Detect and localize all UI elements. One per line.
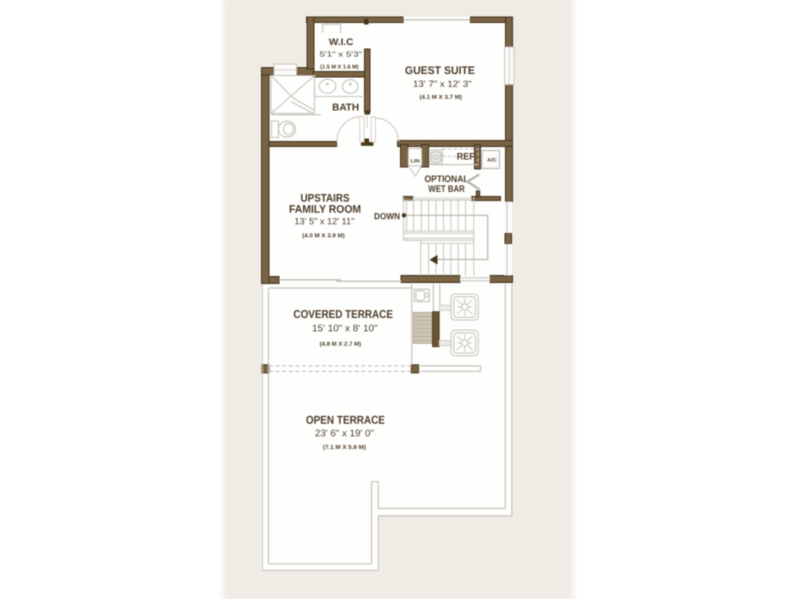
svg-text:A/C: A/C [487,158,497,164]
svg-text:WET BAR: WET BAR [428,184,465,195]
svg-text:BATH: BATH [332,102,359,113]
svg-text:(1.5 M X 1.6 M): (1.5 M X 1.6 M) [320,64,359,70]
svg-text:DOWN: DOWN [374,211,400,221]
svg-text:LIN: LIN [411,159,420,165]
svg-text:COVERED TERRACE: COVERED TERRACE [293,309,393,321]
svg-text:REF: REF [457,152,475,163]
svg-text:(4.1 M X 3.7 M): (4.1 M X 3.7 M) [419,95,462,101]
svg-text:(4.8 M X 2.7 M): (4.8 M X 2.7 M) [320,342,362,348]
svg-text:23' 6" x 19' 0": 23' 6" x 19' 0" [315,428,374,439]
svg-text:OPEN TERRACE: OPEN TERRACE [306,415,385,427]
svg-text:5'1" x 5'3": 5'1" x 5'3" [319,50,362,59]
svg-text:GUEST SUITE: GUEST SUITE [405,65,475,77]
svg-text:FAMILY ROOM: FAMILY ROOM [289,204,361,216]
svg-text:13' 5" x 12' 11": 13' 5" x 12' 11" [294,216,354,226]
svg-text:W.I.C: W.I.C [329,37,354,48]
svg-text:(4.0 M X 3.9 M): (4.0 M X 3.9 M) [302,233,345,239]
svg-text:15' 10" x 8' 10": 15' 10" x 8' 10" [312,323,378,334]
svg-text:13' 7" x 12' 3": 13' 7" x 12' 3" [413,79,472,89]
svg-text:(7.1 M X 5.8 M): (7.1 M X 5.8 M) [323,445,366,451]
